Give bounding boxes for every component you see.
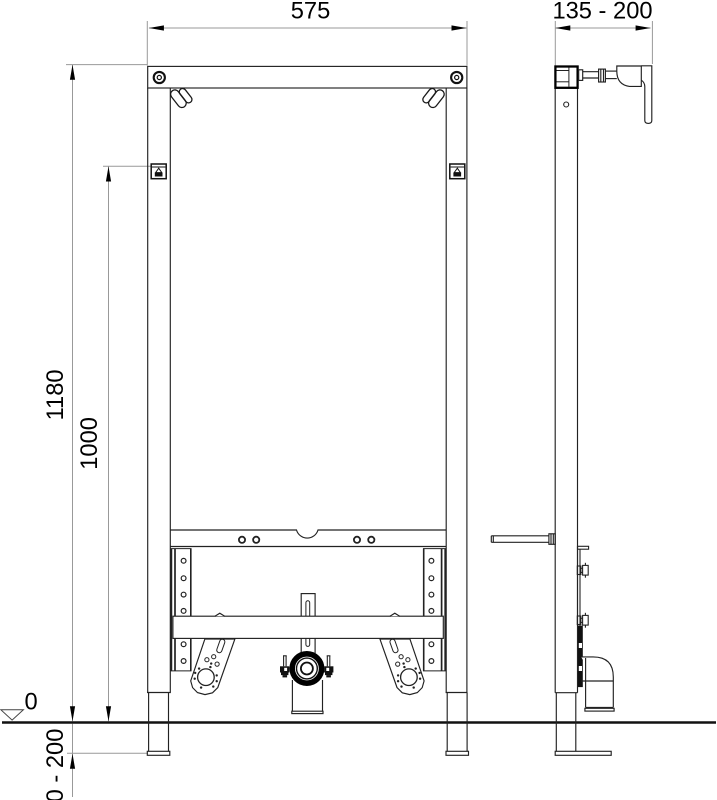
- svg-text:1000: 1000: [77, 417, 103, 470]
- svg-text:135 - 200: 135 - 200: [552, 0, 652, 25]
- svg-text:0: 0: [25, 689, 38, 715]
- svg-text:0 - 200: 0 - 200: [43, 729, 69, 800]
- svg-text:1180: 1180: [43, 369, 69, 420]
- svg-text:575: 575: [291, 0, 331, 25]
